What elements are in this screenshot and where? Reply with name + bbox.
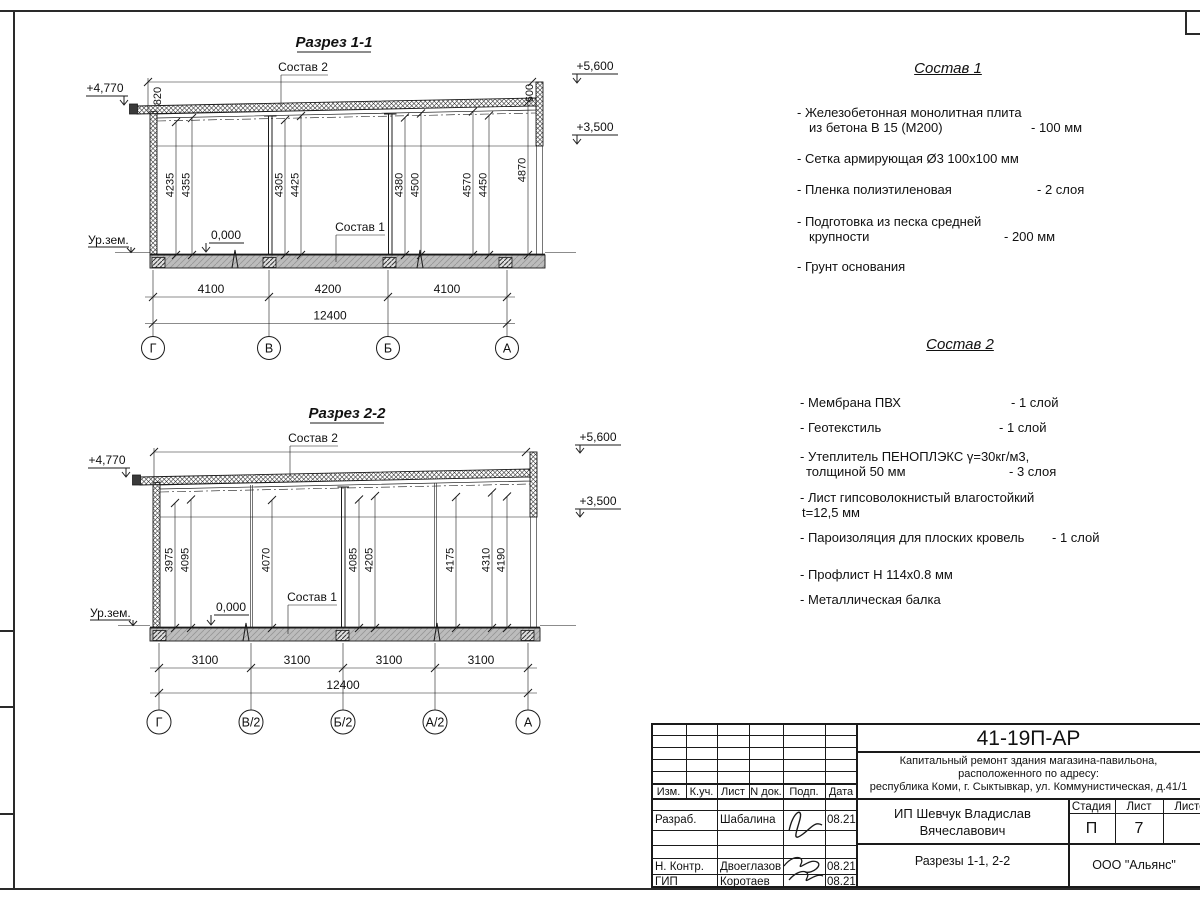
frame-top-border xyxy=(0,10,1200,12)
callout-label: Состав 2 xyxy=(278,60,328,74)
dim-text: 4070 xyxy=(261,548,273,572)
dim-text: 4085 xyxy=(348,548,360,572)
list-item: - Лист гипсоволокнистый влагостойкий xyxy=(800,491,1034,506)
project-desc-line2: расположенного по адресу: xyxy=(857,768,1200,780)
stage-label: Стадия xyxy=(1068,801,1115,813)
col-podp: Подп. xyxy=(783,786,825,798)
list-title: Состав 2 xyxy=(905,336,1015,353)
dim-text: 12400 xyxy=(313,309,347,323)
callout-sostav-2: Состав 2 xyxy=(278,60,328,106)
dim-text: 4425 xyxy=(290,173,302,197)
row-date: 08.21 xyxy=(827,861,856,873)
row-date: 08.21 xyxy=(827,814,856,826)
axis-label: В xyxy=(265,342,273,356)
dim-text: 3100 xyxy=(192,653,219,667)
frame-bottom-border xyxy=(0,888,1200,890)
list-item-value: - 100 мм xyxy=(1031,121,1082,136)
row-date: 08.21 xyxy=(827,876,856,888)
frame-margin-tick-1 xyxy=(0,630,13,632)
list-item: - Грунт основания xyxy=(797,260,905,275)
elevation-mark-zero: 0,000 xyxy=(207,600,249,625)
signature xyxy=(781,803,827,845)
axis-label: А xyxy=(503,342,512,356)
list-item: - Пароизоляция для плоских кровель xyxy=(800,531,1024,546)
row-name: Коротаев xyxy=(720,876,770,888)
axis-label: А xyxy=(524,716,533,730)
list-item: - Подготовка из песка средней xyxy=(797,215,981,230)
footing xyxy=(336,631,349,641)
dim-text: 4190 xyxy=(496,548,508,572)
list-item: толщиной 50 мм xyxy=(806,465,906,480)
elevation-label: +5,600 xyxy=(579,430,616,444)
dimension-chain: 4100 4200 4100 12400 xyxy=(145,270,515,337)
elevation-label: +4,770 xyxy=(86,81,123,95)
dim-text: 4205 xyxy=(364,548,376,572)
left-wall xyxy=(153,482,160,628)
dim-text: 4100 xyxy=(198,282,225,296)
dim-text: 3100 xyxy=(376,653,403,667)
dim-text: 4570 xyxy=(462,173,474,197)
signature xyxy=(779,848,831,888)
callout-label: Состав 1 xyxy=(335,220,385,234)
floor-slab xyxy=(115,250,576,268)
project-desc-line1: Капитальный ремонт здания магазина-павил… xyxy=(857,755,1200,767)
dim-text: 4355 xyxy=(181,173,193,197)
sheet-number: 7 xyxy=(1115,820,1163,838)
dim-text: 4235 xyxy=(165,173,177,197)
footing xyxy=(152,258,165,268)
axis-bubbles: Г В/2 Б/2 А/2 А xyxy=(147,710,540,734)
dim-text: 4200 xyxy=(315,282,342,296)
list-item-value: - 1 слой xyxy=(999,421,1047,436)
row-name: Двоеглазов xyxy=(720,861,781,873)
elevation-label: 0,000 xyxy=(216,600,246,614)
dim-text: 4095 xyxy=(180,548,192,572)
dim-text: 3100 xyxy=(468,653,495,667)
frame-margin-tick-3 xyxy=(0,813,13,815)
list-item-value: - 1 слой xyxy=(1011,396,1059,411)
list-item: t=12,5 мм xyxy=(802,506,860,521)
elevation-mark-4770: +4,770 xyxy=(86,81,128,105)
elevation-label: 0,000 xyxy=(211,228,241,242)
dim-text: 12400 xyxy=(326,678,360,692)
list-item-value: - 3 слоя xyxy=(1009,465,1056,480)
client-name-line1: ИП Шевчук Владислав xyxy=(857,806,1068,821)
dim-text: 4100 xyxy=(434,282,461,296)
row-role: Разраб. xyxy=(655,814,696,826)
elevation-mark-zero: 0,000 xyxy=(202,228,244,252)
frame-left-border xyxy=(13,10,15,890)
col-kuch: К.уч. xyxy=(686,786,717,798)
footing xyxy=(263,258,276,268)
ground-label: Ур.зем. xyxy=(88,233,129,247)
list-title: Состав 1 xyxy=(893,60,1003,77)
callout-label: Состав 2 xyxy=(288,431,338,445)
elevation-label: +3,500 xyxy=(579,494,616,508)
row-name: Шабалина xyxy=(720,814,776,826)
section-2-2-drawing: Разрез 2-2 xyxy=(80,395,650,760)
list-item-value: - 2 слоя xyxy=(1037,183,1084,198)
list-item: - Профлист Н 114x0.8 мм xyxy=(800,568,953,583)
dim-text: 4450 xyxy=(478,173,490,197)
client-name-line2: Вячеславович xyxy=(857,823,1068,838)
col-ndok: N док. xyxy=(749,786,783,798)
list-item: из бетона В 15 (М200) xyxy=(809,121,943,136)
sheet-title: Разрезы 1-1, 2-2 xyxy=(857,854,1068,868)
elevation-mark-3500: +3,500 xyxy=(575,494,621,517)
elevation-label: +3,500 xyxy=(576,120,613,134)
elevation-mark-5600: +5,600 xyxy=(572,59,618,83)
stage-value: П xyxy=(1068,820,1115,838)
list-item: - Металлическая балка xyxy=(800,593,941,608)
axis-label: Б xyxy=(384,342,392,356)
frame-corner-box-v xyxy=(1185,10,1187,33)
frame-corner-box-h xyxy=(1185,33,1200,35)
axis-label: Б/2 xyxy=(334,716,353,730)
callout-sostav-2: Состав 2 xyxy=(288,431,338,477)
list-item: крупности xyxy=(809,230,869,245)
dim-text: 4870 xyxy=(517,158,529,182)
elevation-mark-4770: +4,770 xyxy=(88,453,130,477)
partition-axis-A2 xyxy=(435,483,437,628)
ground-label: Ур.зем. xyxy=(90,606,131,620)
section-1-1-drawing: Разрез 1-1 xyxy=(80,30,650,370)
partition-axis-V2 xyxy=(251,485,253,628)
dim-text: 4380 xyxy=(394,173,406,197)
axis-label: Г xyxy=(150,342,157,356)
doc-number: 41-19П-АР xyxy=(857,727,1200,751)
sheet-label: Лист xyxy=(1115,801,1163,813)
callout-label: Состав 1 xyxy=(287,590,337,604)
elevation-label: +5,600 xyxy=(576,59,613,73)
col-data: Дата xyxy=(825,786,857,798)
list-item-value: - 200 мм xyxy=(1004,230,1055,245)
frame-margin-tick-2 xyxy=(0,706,13,708)
dim-text: 4305 xyxy=(274,173,286,197)
dim-text: 4175 xyxy=(445,548,457,572)
footing xyxy=(521,631,534,641)
axis-bubbles: Г В Б А xyxy=(142,337,519,360)
roof-assembly xyxy=(133,469,531,492)
dim-text: 3975 xyxy=(164,548,176,572)
col-izm: Изм. xyxy=(651,786,686,798)
organization: ООО "Альянс" xyxy=(1068,858,1200,872)
section-title: Разрез 2-2 xyxy=(308,405,386,422)
row-role: Н. Контр. xyxy=(655,861,704,873)
elevation-label: +4,770 xyxy=(88,453,125,467)
axis-label: А/2 xyxy=(426,716,445,730)
right-wall xyxy=(530,452,537,628)
right-wall xyxy=(536,82,543,255)
row-role: ГИП xyxy=(655,876,678,888)
ground-level-label: Ур.зем. xyxy=(90,606,137,626)
footing xyxy=(499,258,512,268)
elevation-mark-5600: +5,600 xyxy=(575,430,621,453)
dim-text: 4310 xyxy=(481,548,493,572)
list-item-value: - 1 слой xyxy=(1052,531,1100,546)
project-desc-line3: республика Коми, г. Сыктывкар, ул. Комму… xyxy=(857,781,1200,793)
footing xyxy=(153,631,166,641)
sheets-label: Листов xyxy=(1163,801,1200,813)
footing xyxy=(383,258,396,268)
list-item: - Геотекстиль xyxy=(800,421,881,436)
section-title: Разрез 1-1 xyxy=(295,34,372,51)
ground-level-label: Ур.зем. xyxy=(88,233,135,253)
left-wall xyxy=(150,111,157,255)
list-item: - Железобетонная монолитная плита xyxy=(797,106,1022,121)
list-item: - Сетка армирующая Ø3 100x100 мм xyxy=(797,152,1019,167)
list-item: - Пленка полиэтиленовая xyxy=(797,183,952,198)
list-item: - Утеплитель ПЕНОПЛЭКС γ=30кг/м3, xyxy=(800,450,1029,465)
elevation-mark-3500: +3,500 xyxy=(572,120,618,144)
list-item: - Мембрана ПВХ xyxy=(800,396,901,411)
axis-label: Г xyxy=(156,716,163,730)
drawing-sheet: Разрез 1-1 xyxy=(0,0,1200,900)
col-list: Лист xyxy=(717,786,749,798)
dim-text: 4500 xyxy=(410,173,422,197)
dim-820: 820 xyxy=(152,87,164,105)
dimension-chain: 3100 3100 3100 3100 12400 xyxy=(150,643,537,710)
axis-label: В/2 xyxy=(242,716,261,730)
dim-text: 3100 xyxy=(284,653,311,667)
